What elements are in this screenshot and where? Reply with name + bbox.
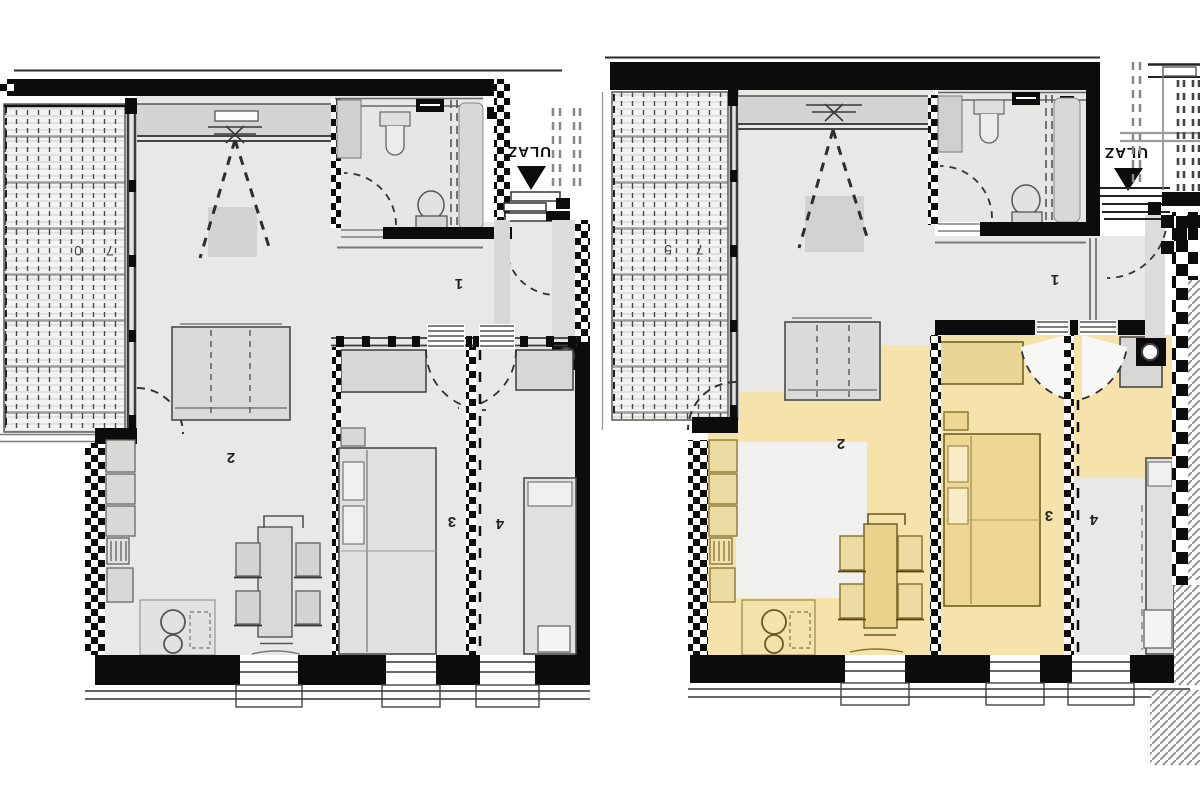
svg-text:ULAZ: ULAZ [507,143,551,160]
svg-text:4: 4 [495,515,504,532]
svg-text:75: 75 [640,242,704,258]
svg-text:4: 4 [1089,511,1098,528]
svg-text:2: 2 [837,435,845,452]
svg-text:70: 70 [50,243,114,259]
svg-text:ULAZ: ULAZ [1104,144,1148,161]
svg-text:2: 2 [227,449,235,466]
svg-text:3: 3 [1045,507,1053,524]
svg-text:1: 1 [455,275,463,292]
svg-text:1: 1 [1051,271,1059,288]
svg-text:3: 3 [448,513,456,530]
